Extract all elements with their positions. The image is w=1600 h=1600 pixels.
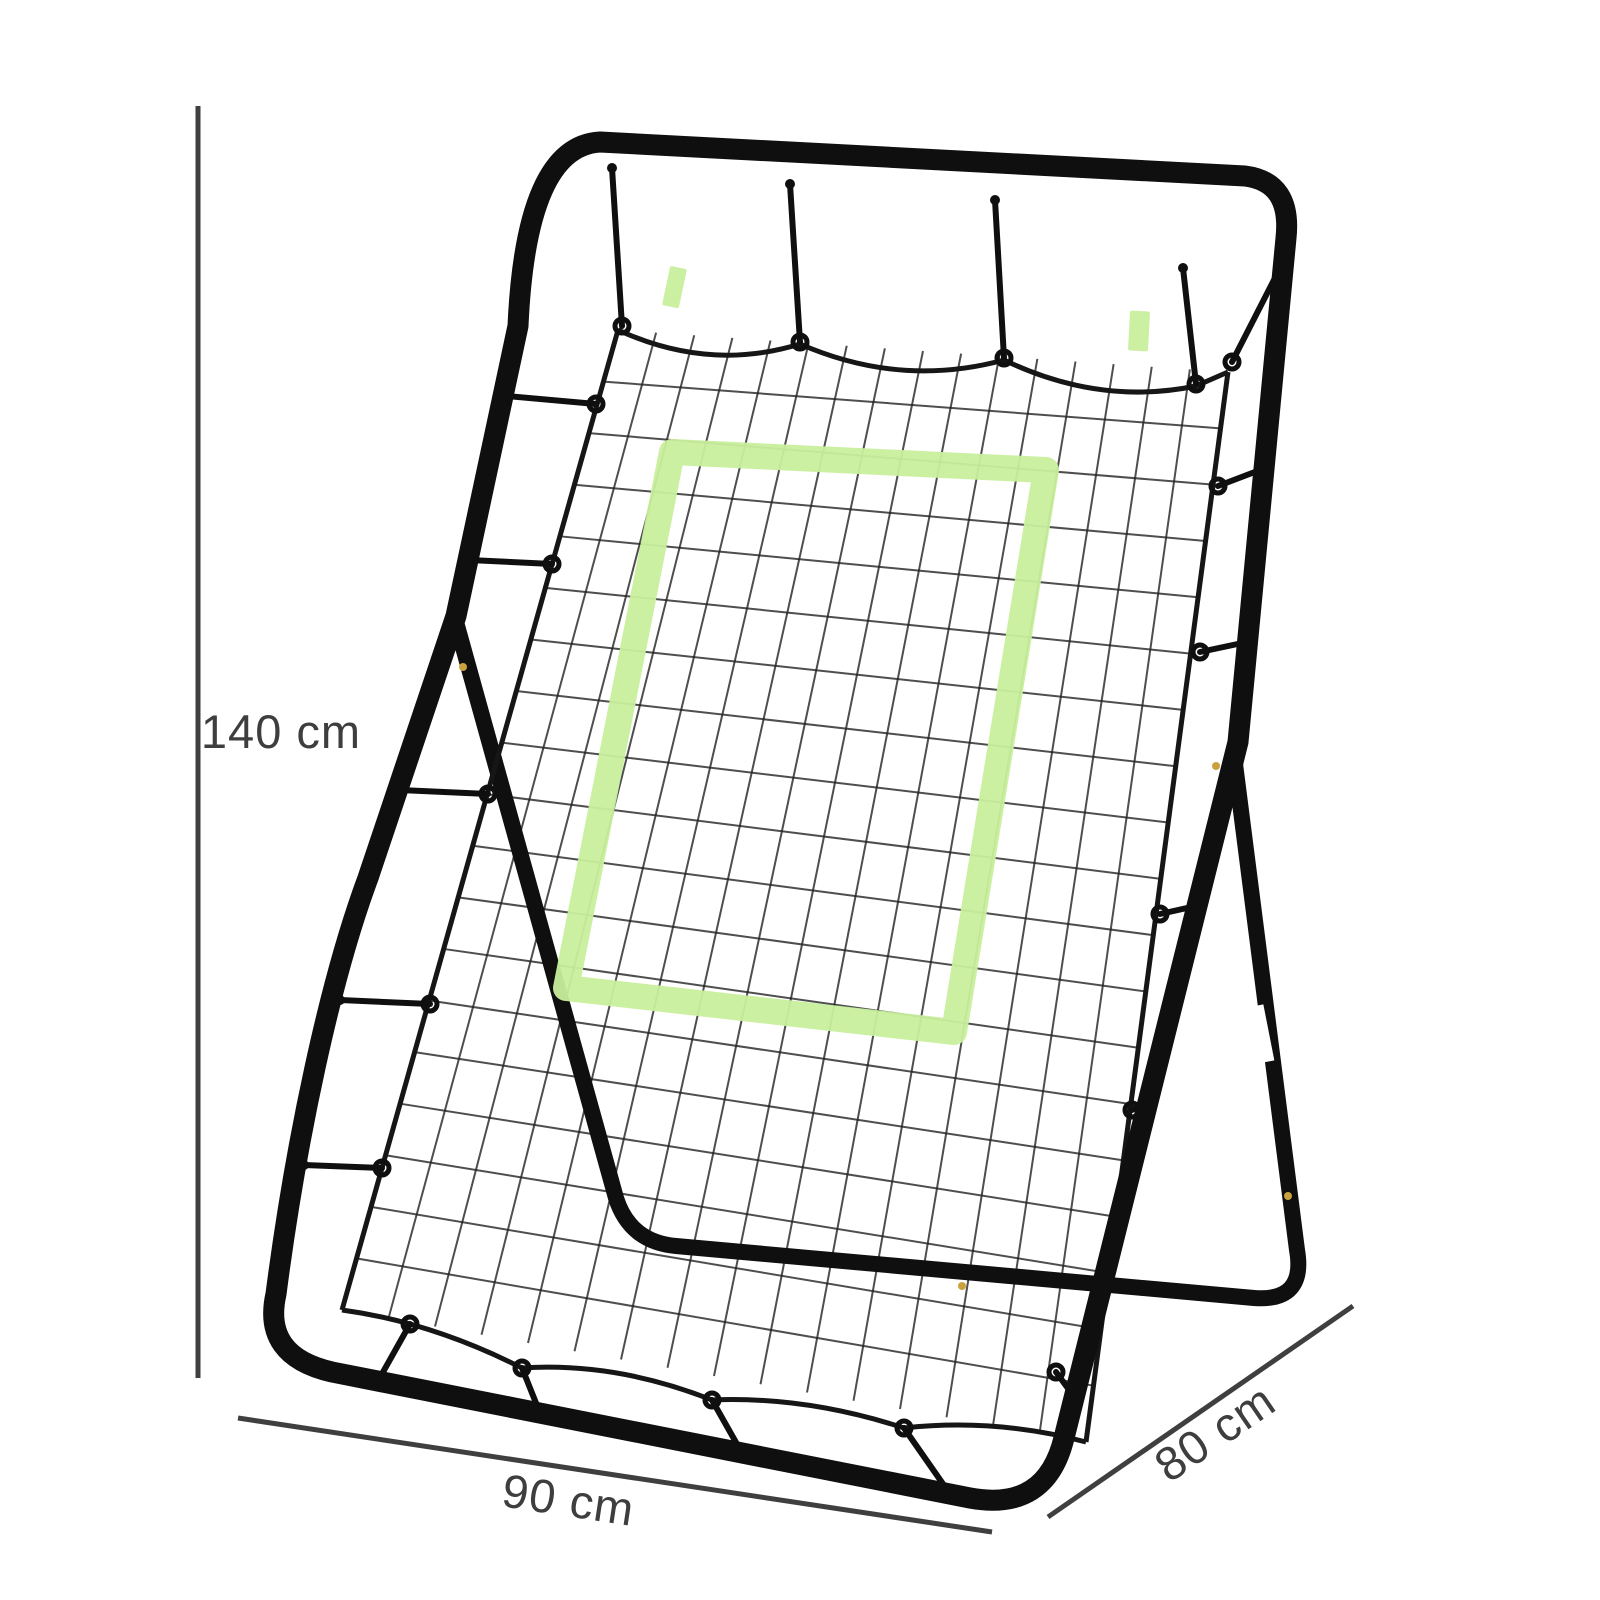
rebounder-diagram: 140 cm 90 cm 80 cm [0, 0, 1600, 1600]
green-tape-tab-right [1128, 311, 1150, 352]
depth-dimension-label: 80 cm [1145, 1373, 1285, 1492]
height-dimension-label: 140 cm [201, 705, 361, 758]
product-dimension-image: 140 cm 90 cm 80 cm [0, 0, 1600, 1600]
bungee-hooks [299, 163, 1283, 1499]
rear-leg-white-band [1255, 1006, 1266, 1062]
dimension-annotations: 140 cm 90 cm 80 cm [198, 106, 1353, 1536]
green-tape-tab-left [662, 266, 687, 309]
